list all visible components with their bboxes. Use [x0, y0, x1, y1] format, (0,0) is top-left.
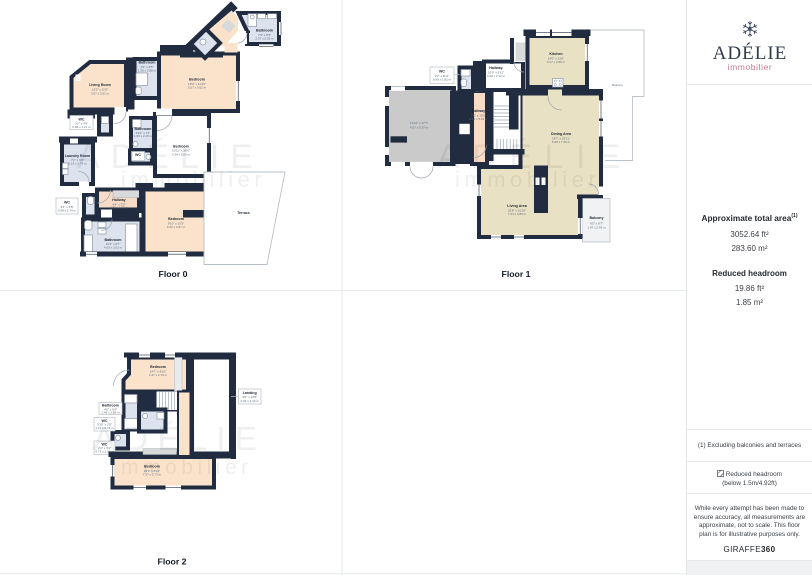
- svg-text:1.46 x 2.85 m: 1.46 x 2.85 m: [101, 411, 120, 415]
- svg-text:Floor 1: Floor 1: [502, 269, 531, 279]
- svg-text:Bedroom: Bedroom: [189, 78, 205, 82]
- svg-text:Dining Area: Dining Area: [551, 132, 572, 136]
- svg-text:2.86 x 1.93 m: 2.86 x 1.93 m: [110, 206, 129, 210]
- svg-text:3.97 x 3.51 m: 3.97 x 3.51 m: [91, 91, 110, 95]
- svg-text:Bathroom: Bathroom: [139, 61, 156, 65]
- svg-text:0.98 x 1.47 m: 0.98 x 1.47 m: [72, 125, 91, 129]
- svg-text:1.30 x 2.88 m: 1.30 x 2.88 m: [138, 69, 157, 73]
- svg-text:0.92 x 4.19 m: 0.92 x 4.19 m: [241, 399, 260, 403]
- svg-text:immobilier: immobilier: [112, 456, 253, 479]
- svg-text:4.57 x 5.37 m: 4.57 x 5.37 m: [410, 125, 429, 129]
- svg-text:Bedroom: Bedroom: [168, 217, 184, 221]
- svg-text:4.03 x 2.62 m: 4.03 x 2.62 m: [104, 246, 123, 250]
- svg-text:ADÉLIE: ADÉLIE: [93, 420, 266, 457]
- svg-text:7.24 x 4.85 m: 7.24 x 4.85 m: [508, 212, 527, 216]
- svg-text:Balcony: Balcony: [590, 216, 604, 220]
- svg-text:Floor 2: Floor 2: [158, 557, 187, 567]
- svg-text:1.97 x 2.93 m: 1.97 x 2.93 m: [587, 226, 606, 230]
- svg-text:Floor 0: Floor 0: [159, 269, 188, 279]
- svg-text:Terrace: Terrace: [237, 211, 250, 215]
- svg-text:4.27 x 3.98 m: 4.27 x 3.98 m: [547, 60, 566, 64]
- svg-text:Bedroom: Bedroom: [150, 365, 166, 369]
- svg-text:immobilier: immobilier: [121, 167, 266, 192]
- svg-text:Balcony: Balcony: [612, 83, 623, 87]
- svg-text:4.47 x 2.70 m: 4.47 x 2.70 m: [149, 373, 168, 377]
- svg-text:2.37 x 2.53 m: 2.37 x 2.53 m: [255, 37, 274, 41]
- svg-text:Kitchen: Kitchen: [549, 52, 562, 56]
- svg-text:immobilier: immobilier: [455, 167, 600, 192]
- svg-text:3.02 x 4.97 m: 3.02 x 4.97 m: [167, 225, 186, 229]
- svg-text:Living Area: Living Area: [507, 204, 527, 208]
- svg-text:3.28 x 2.12 m: 3.28 x 2.12 m: [487, 74, 506, 78]
- svg-text:0.98 x 1.74 m: 0.98 x 1.74 m: [58, 208, 77, 212]
- svg-text:0.99 x 1.82 m: 0.99 x 1.82 m: [433, 77, 452, 81]
- svg-text:2.14 x 5.02 m: 2.14 x 5.02 m: [469, 117, 488, 121]
- svg-text:Living Room: Living Room: [89, 83, 111, 87]
- svg-text:5.57 x 3.62 m: 5.57 x 3.62 m: [188, 86, 207, 90]
